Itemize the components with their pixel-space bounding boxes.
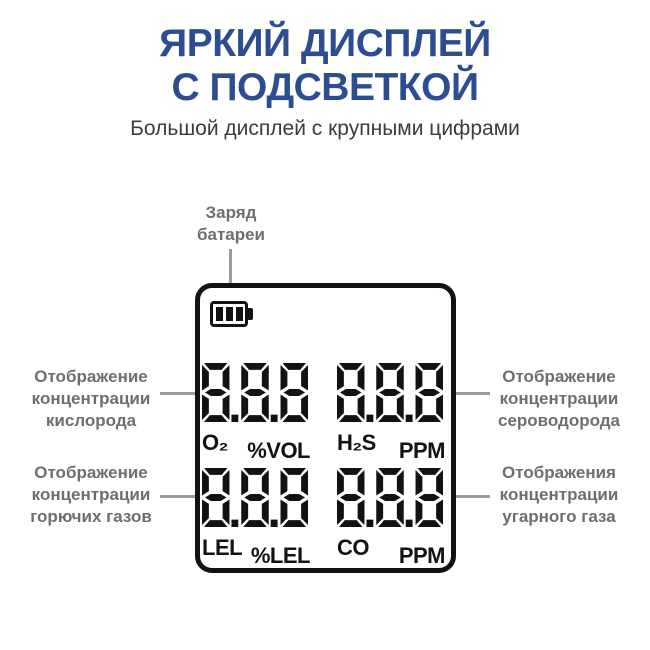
gas-name-label: LEL <box>202 535 242 561</box>
gas-cell-labels: CO PPM <box>337 535 445 569</box>
oxygen-callout-line1: Отображение <box>16 366 166 388</box>
gas-cell-combustible: LEL %LEL <box>202 468 310 569</box>
gas-cell-oxygen: O₂ %VOL <box>202 363 310 464</box>
co-callout-line1: Отображения <box>484 462 634 484</box>
gas-cell-labels: H₂S PPM <box>337 430 445 464</box>
h2s-callout-line3: сероводорода <box>484 410 634 432</box>
gas-name-label: H₂S <box>337 430 376 456</box>
seven-segment-display <box>337 468 443 527</box>
battery-callout-line1: Заряд <box>151 202 311 224</box>
page-title-line2: С ПОДСВЕТКОЙ <box>0 66 650 110</box>
combustible-callout-line1: Отображение <box>16 462 166 484</box>
seven-segment-display <box>202 363 308 422</box>
battery-bar <box>226 307 233 321</box>
gas-cell-labels: LEL %LEL <box>202 535 310 569</box>
gas-unit-label: %LEL <box>251 543 310 569</box>
oxygen-callout-label: Отображение концентрации кислорода <box>16 366 166 432</box>
co-callout-line2: концентрации <box>484 484 634 506</box>
battery-callout-line2: батареи <box>151 224 311 246</box>
battery-icon-terminal <box>248 308 253 320</box>
battery-bar <box>236 307 243 321</box>
combustible-callout-line2: концентрации <box>16 484 166 506</box>
gas-name-label: O₂ <box>202 430 228 456</box>
h2s-callout-label: Отображение концентрации сероводорода <box>484 366 634 432</box>
oxygen-callout-line3: кислорода <box>16 410 166 432</box>
oxygen-callout-line2: концентрации <box>16 388 166 410</box>
infographic-canvas: ЯРКИЙ ДИСПЛЕЙ С ПОДСВЕТКОЙ Большой диспл… <box>0 0 650 650</box>
battery-callout-label: Заряд батареи <box>151 202 311 245</box>
page-subtitle: Большой дисплей с крупными цифрами <box>0 117 650 141</box>
gas-unit-label: PPM <box>399 543 445 569</box>
seven-segment-display <box>202 468 308 527</box>
gas-cell-co: CO PPM <box>337 468 445 569</box>
page-title-line1: ЯРКИЙ ДИСПЛЕЙ <box>0 22 650 66</box>
page-title: ЯРКИЙ ДИСПЛЕЙ С ПОДСВЕТКОЙ <box>0 22 650 110</box>
battery-icon <box>210 301 248 327</box>
gas-unit-label: %VOL <box>247 438 310 464</box>
combustible-callout-line3: горючих газов <box>16 506 166 528</box>
h2s-callout-line2: концентрации <box>484 388 634 410</box>
gas-unit-label: PPM <box>399 438 445 464</box>
battery-bar <box>216 307 223 321</box>
combustible-callout-label: Отображение концентрации горючих газов <box>16 462 166 528</box>
co-callout-label: Отображения концентрации угарного газа <box>484 462 634 528</box>
h2s-callout-line1: Отображение <box>484 366 634 388</box>
gas-cell-labels: O₂ %VOL <box>202 430 310 464</box>
seven-segment-display <box>337 363 443 422</box>
gas-cell-h2s: H₂S PPM <box>337 363 445 464</box>
co-callout-line3: угарного газа <box>484 506 634 528</box>
gas-name-label: CO <box>337 535 369 561</box>
